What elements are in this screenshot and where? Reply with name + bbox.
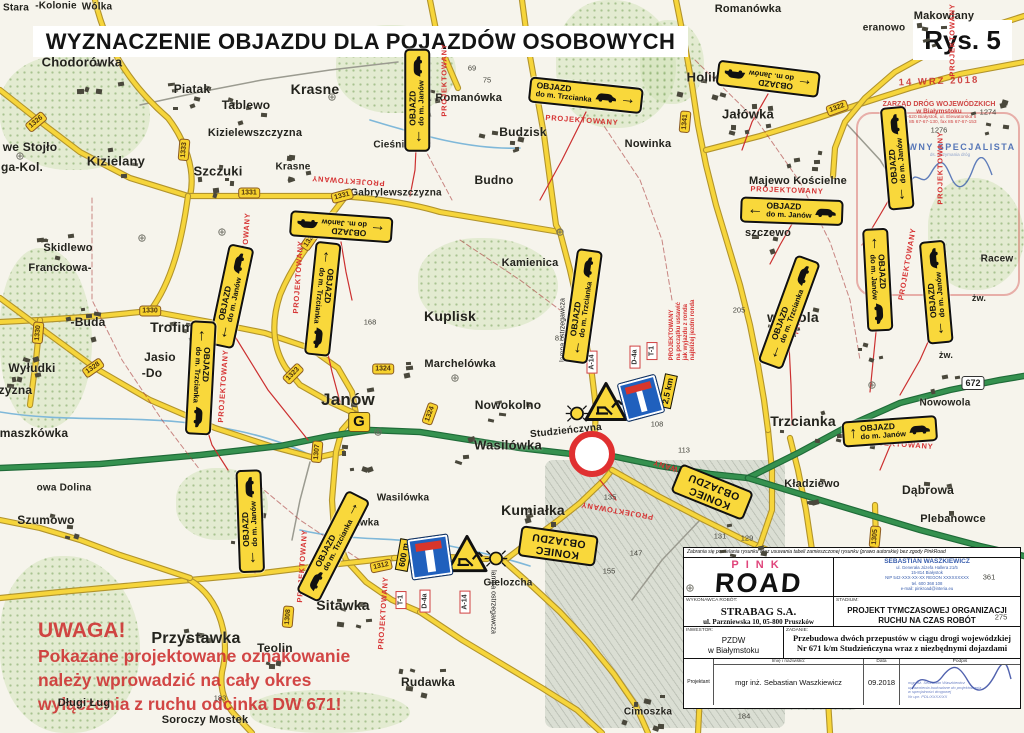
car-icon xyxy=(815,206,837,218)
place-label: Jałówka xyxy=(722,107,774,122)
map-number: 1274 xyxy=(980,108,997,117)
arrow-icon: ← xyxy=(765,342,784,362)
warning-lamp-label: lampa ostrzegawcza xyxy=(490,570,497,634)
building-mark xyxy=(73,533,79,539)
building-mark xyxy=(121,174,127,178)
building-mark xyxy=(955,375,960,379)
car-icon xyxy=(580,256,594,279)
detour-end-sign: KONIECOBJAZDU xyxy=(517,525,599,567)
place-label: we Stojło xyxy=(3,140,57,154)
building-mark xyxy=(342,451,346,456)
building-mark xyxy=(879,355,884,359)
arrow-icon: ← xyxy=(320,248,336,265)
projektowany-label: PROJEKTOWANY xyxy=(580,500,654,522)
title-block: Zabrania się powielania rysunku oraz usu… xyxy=(683,547,1021,709)
place-label: ga-Kol. xyxy=(1,160,43,174)
road-number-shield: 1341 xyxy=(679,111,692,133)
building-mark xyxy=(917,23,923,28)
sign-destination: do m. Janów xyxy=(868,254,879,300)
building-mark xyxy=(499,413,506,417)
car-icon xyxy=(723,68,746,82)
building-mark xyxy=(225,178,229,181)
place-label: Szumowo xyxy=(17,513,74,527)
detour-sign: ←OBJAZDdo m. Janów xyxy=(740,196,844,225)
arrow-icon: ← xyxy=(568,339,584,357)
building-mark xyxy=(77,88,84,93)
pinkroad-logo: PINK ROAD xyxy=(684,558,834,596)
building-mark xyxy=(711,95,718,101)
arrow-icon: ← xyxy=(869,235,884,252)
road-number-shield: 1312 xyxy=(369,558,392,573)
building-mark xyxy=(406,362,411,365)
sign-destination: do m. Janów xyxy=(935,272,947,318)
detour-sign: ←OBJAZDdo m. Janów xyxy=(715,60,821,98)
place-label: Nowokolno xyxy=(475,398,541,412)
stage-cell: STADIUM: PROJEKT TYMCZASOWEJ ORGANIZACJI… xyxy=(834,597,1020,626)
building-mark xyxy=(455,460,462,465)
task-cell: ZADANIE: Przebudowa dwóch przepustów w c… xyxy=(784,627,1020,658)
place-label: Krasne xyxy=(275,162,310,173)
detour-sign: ←OBJAZDdo m. Janów xyxy=(919,239,953,344)
car-icon xyxy=(243,476,255,498)
place-label: Wólka xyxy=(82,2,112,13)
building-mark xyxy=(173,107,178,110)
building-mark xyxy=(462,455,468,459)
car-icon xyxy=(412,55,423,77)
place-label: Kizielany xyxy=(87,154,145,169)
place-label: czyzna xyxy=(0,383,32,397)
building-mark xyxy=(478,133,485,139)
contractor-cell: WYKONAWCA ROBÓT: STRABAG S.A. ul. Parzni… xyxy=(684,597,834,626)
arrow-icon: ← xyxy=(244,549,259,565)
place-label: Teolin xyxy=(257,641,293,655)
road-number-shield: 1305 xyxy=(869,526,882,548)
map-number: 131 xyxy=(714,532,727,541)
designer-name: mgr inż. Sebastian Waszkiewicz xyxy=(714,665,863,699)
building-mark xyxy=(835,438,841,443)
place-label: Skidlewo xyxy=(43,242,92,254)
sign-type-label: A-14 xyxy=(460,590,471,613)
signature-scribble xyxy=(905,157,995,197)
building-mark xyxy=(193,96,200,102)
sign-destination: do m. Janów xyxy=(860,430,906,442)
sign-type-label: T-1 xyxy=(647,342,658,360)
detour-sign: ←OBJAZDdo m. Janów xyxy=(404,48,430,151)
signature-cell: Podpis mgr inż. Sebastian Waszkiewicz up… xyxy=(900,659,1020,705)
place-label: Kładziewo xyxy=(784,478,840,490)
map-number: 275 xyxy=(995,613,1008,622)
place-label: -Kolonie xyxy=(35,1,77,12)
map-number: 75 xyxy=(483,76,491,85)
detour-end-sign: KONIECOBJAZDU xyxy=(670,463,754,521)
building-mark xyxy=(863,343,869,348)
building-mark xyxy=(406,366,413,370)
car-icon xyxy=(595,90,618,103)
building-mark xyxy=(744,129,749,134)
road-number-shield: 1330 xyxy=(139,306,161,317)
sign-type-label: D-4a xyxy=(420,589,431,612)
sign-destination: do m. Janów xyxy=(250,501,260,547)
place-label: Nowinka xyxy=(625,138,672,150)
place-label: Wyłudki xyxy=(8,361,55,375)
arrow-icon: → xyxy=(342,498,362,519)
place-label: -Do xyxy=(142,366,163,380)
building-mark xyxy=(16,377,22,383)
map-number: 129 xyxy=(741,534,754,543)
building-mark xyxy=(190,103,196,108)
roundabout-note: PROJEKTOWANYna początku ustawićjak wyjaz… xyxy=(669,300,697,361)
place-label: owa Dolina xyxy=(37,483,92,494)
projektowany-label: PROJEKTOWANY xyxy=(750,184,824,196)
projektowany-label: PROJEKTOWANY xyxy=(216,349,230,423)
forest-area xyxy=(0,248,92,428)
car-icon xyxy=(888,113,901,136)
map-number: 361 xyxy=(983,573,996,582)
place-label: Plebanowce xyxy=(920,513,986,525)
road-number-shield: 1333 xyxy=(178,139,191,161)
place-label: maszkówka xyxy=(0,426,68,440)
building-mark xyxy=(342,444,349,448)
building-mark xyxy=(231,541,236,545)
road-number-shield: 1323 xyxy=(281,362,304,385)
projektowany-label: PROJEKTOWANY xyxy=(936,131,945,204)
place-label: Kizielewszczyzna xyxy=(208,127,302,139)
place-label: Makowlany xyxy=(914,10,975,22)
contractor-name: STRABAG S.A. xyxy=(721,606,797,618)
poi-icon: ⊕ xyxy=(685,582,694,595)
place-label: Piatak xyxy=(174,82,211,96)
place-label: Krasne xyxy=(291,81,340,97)
sign-destination: do m. Janów xyxy=(766,210,812,220)
place-label: Racew xyxy=(981,254,1014,265)
d4a-no-through-road-sign xyxy=(406,533,453,580)
building-mark xyxy=(64,535,69,539)
designer-stamp: mgr inż. Sebastian Waszkiewicz uprawnien… xyxy=(908,681,981,699)
road-number-shield: 1331 xyxy=(330,188,354,204)
title-banner: WYZNACZENIE OBJAZDU DLA POJAZDÓW OSOBOWY… xyxy=(33,26,688,57)
projektowany-label: PROJEKTOWANY xyxy=(291,240,305,314)
building-mark xyxy=(409,669,415,674)
arrow-icon: → xyxy=(619,92,636,108)
arrow-icon: ← xyxy=(796,76,814,92)
building-mark xyxy=(212,193,217,199)
place-label: Kumiałka xyxy=(501,502,565,518)
warning-lamp-icon xyxy=(483,546,509,577)
building-mark xyxy=(404,372,411,378)
projektowany-label: PROJEKTOWANY xyxy=(545,113,619,127)
map-number: 147 xyxy=(630,549,643,558)
place-label: Kuplisk xyxy=(424,308,476,324)
gmina-marker: G xyxy=(348,412,370,432)
place-label: Cimoszka xyxy=(624,707,672,718)
poi-icon: ⊕ xyxy=(217,226,226,239)
building-mark xyxy=(984,131,989,135)
road-number-shield: 1324 xyxy=(372,364,394,375)
building-mark xyxy=(814,160,820,165)
building-mark xyxy=(238,120,244,125)
building-mark xyxy=(515,147,519,151)
building-mark xyxy=(84,86,89,92)
road-number-shield: 672 xyxy=(961,376,984,390)
sign-type-label: T-1 xyxy=(396,591,407,609)
design-date: 09.2018 xyxy=(864,665,899,699)
name-cell: Imię i nazwisko: mgr inż. Sebastian Wasz… xyxy=(714,659,864,705)
building-mark xyxy=(811,167,817,171)
date-stamp: 14 WRZ 2018 xyxy=(860,73,1018,90)
place-label: Janów xyxy=(321,390,375,410)
place-label: szczewo xyxy=(745,227,791,239)
building-mark xyxy=(289,155,295,160)
building-mark xyxy=(766,124,771,129)
building-mark xyxy=(786,163,791,168)
detour-sign: ←OBJAZDdo m. Janów xyxy=(863,228,894,333)
car-icon xyxy=(193,406,205,429)
building-mark xyxy=(54,256,60,261)
road-number-shield: 1324 xyxy=(421,402,439,426)
map-number: 113 xyxy=(678,446,690,455)
place-label: Kamienica xyxy=(502,257,559,269)
place-label: L. Romanówka xyxy=(422,92,502,104)
place-label: Jasio xyxy=(144,350,176,364)
building-mark xyxy=(269,664,276,669)
place-label: Szczuki xyxy=(193,164,242,179)
warning-lamp-icon xyxy=(564,401,590,432)
poi-icon: ⊕ xyxy=(373,426,382,439)
sign-destination: do m. Janów xyxy=(896,138,908,184)
map-number: 184 xyxy=(738,712,751,721)
map-number: 205 xyxy=(733,306,746,315)
projektowany-label: PROJEKTOWANY xyxy=(948,3,957,76)
place-label: eranowo xyxy=(863,23,906,34)
page-title: WYZNACZENIE OBJAZDU DLA POJAZDÓW OSOBOWY… xyxy=(46,29,676,55)
place-label: Budzisk xyxy=(499,125,546,139)
date-cell: Data 09.2018 xyxy=(864,659,900,705)
poi-icon: ⊕ xyxy=(450,372,459,385)
building-mark xyxy=(421,692,428,698)
place-label: żw. xyxy=(939,350,953,360)
detour-sign: ←OBJAZDdo m. Trzcianka xyxy=(185,320,216,435)
place-label: Nowowola xyxy=(919,398,970,409)
car-icon xyxy=(927,247,940,270)
building-mark xyxy=(12,376,17,381)
map-number: 183 xyxy=(214,694,227,703)
building-mark xyxy=(728,130,735,136)
building-mark xyxy=(769,248,776,254)
arrow-icon: ← xyxy=(196,328,211,345)
building-mark xyxy=(644,698,652,704)
place-label: Holik xyxy=(687,70,720,85)
place-label: Wasilówka xyxy=(377,493,430,504)
arrow-icon: ← xyxy=(932,320,947,337)
building-mark xyxy=(336,622,343,628)
road-number-shield: 1322 xyxy=(825,99,849,117)
road-number-shield: 1328 xyxy=(81,357,105,378)
projektowany-label: PROJEKTOWANY xyxy=(376,576,390,650)
place-label: Marchelówka xyxy=(424,358,495,370)
building-mark xyxy=(288,178,296,183)
building-mark xyxy=(869,357,874,362)
building-mark xyxy=(350,468,355,472)
place-label: Franckowa- xyxy=(28,262,91,274)
road-number-shield: 1307 xyxy=(311,441,324,463)
building-mark xyxy=(757,545,764,550)
building-mark xyxy=(230,181,235,186)
place-label: żw. xyxy=(972,293,986,303)
building-mark xyxy=(108,148,114,153)
figure-label: Rys. 5 xyxy=(924,25,1001,56)
place-label: Chodorówka xyxy=(42,55,123,70)
building-mark xyxy=(621,719,627,725)
building-mark xyxy=(488,418,494,422)
place-label: Tablewo xyxy=(222,98,271,112)
building-mark xyxy=(794,157,801,162)
stage-value: PROJEKT TYMCZASOWEJ ORGANIZACJI RUCHU NA… xyxy=(834,606,1020,625)
car-icon xyxy=(230,251,245,275)
road-number-shield: 1330 xyxy=(32,322,45,344)
place-label: Wasilówka xyxy=(474,438,542,453)
place-label: Dąbrowa xyxy=(902,483,954,497)
building-mark xyxy=(355,624,361,628)
arrow-icon: ↑ xyxy=(849,426,858,441)
car-icon xyxy=(312,326,325,349)
investor-cell: INWESTOR: PZDW w Białymstoku xyxy=(684,627,784,658)
projektowany-label: PROJEKTOWANY xyxy=(896,227,918,301)
place-label: Długi Ług xyxy=(58,697,111,709)
place-label: Budno xyxy=(475,173,514,187)
building-mark xyxy=(398,668,403,673)
building-mark xyxy=(81,308,85,311)
building-mark xyxy=(440,669,446,672)
building-mark xyxy=(731,125,736,130)
arrow-icon: ← xyxy=(410,129,424,145)
closed-roundabout-marker xyxy=(569,431,615,477)
sign-destination: do m. Janów xyxy=(321,217,367,229)
projektowany-label: PROJEKTOWANY xyxy=(440,43,449,116)
poi-icon: ⊕ xyxy=(555,226,564,239)
task-value: Przebudowa dwóch przepustów w ciągu drog… xyxy=(784,633,1020,653)
detour-sign: ←OBJAZDdo m. Trzcianka xyxy=(561,248,602,365)
building-mark xyxy=(942,374,949,379)
car-icon xyxy=(908,423,931,436)
role-cell: Projektant xyxy=(684,659,714,705)
sign-type-label: D-4a xyxy=(630,345,641,368)
building-mark xyxy=(818,151,823,156)
building-mark xyxy=(660,695,665,698)
map-number: 135 xyxy=(604,493,617,502)
poi-icon: ⊕ xyxy=(867,379,876,392)
building-mark xyxy=(96,89,103,94)
building-mark xyxy=(858,348,862,351)
building-mark xyxy=(261,113,268,118)
map-number: 155 xyxy=(603,567,616,576)
building-mark xyxy=(510,141,515,145)
building-mark xyxy=(551,522,556,527)
projektowany-label: PROJEKTOWANY xyxy=(311,174,385,188)
place-label: Przystawka xyxy=(151,630,240,648)
building-mark xyxy=(118,82,125,87)
detour-sign: ←OBJAZDdo m. Trzcianka xyxy=(304,241,341,357)
map-number: 168 xyxy=(364,318,377,327)
building-mark xyxy=(91,336,97,342)
building-mark xyxy=(677,92,684,98)
building-mark xyxy=(931,388,937,394)
road-number-shield: 1331 xyxy=(238,188,260,199)
car-icon xyxy=(296,218,319,231)
map-number: 69 xyxy=(468,64,476,73)
place-label: Gabrylewszczyzna xyxy=(350,188,442,199)
building-mark xyxy=(922,27,928,32)
car-icon xyxy=(793,263,811,287)
road-number-shield: 1326 xyxy=(24,111,48,133)
car-icon xyxy=(305,569,325,594)
place-label: Rudawka xyxy=(401,675,455,689)
building-mark xyxy=(719,92,725,97)
arrow-icon: ← xyxy=(369,222,386,237)
place-label: Soroczy Mostek xyxy=(162,714,249,726)
detour-sign: ←OBJAZDdo m. Janów xyxy=(235,469,264,573)
building-mark xyxy=(726,524,731,528)
place-label: Trzcianka xyxy=(770,413,836,429)
place-label: Sitawka xyxy=(316,597,370,613)
sign-destination: do m. Trzcianka xyxy=(191,346,202,403)
arrow-icon: ← xyxy=(893,186,908,203)
place-label: Romanówka xyxy=(715,3,782,15)
sign-destination: do m. Janów xyxy=(417,80,426,125)
detour-sign: OBJAZDdo m. Trzcianka→ xyxy=(528,76,644,113)
building-mark xyxy=(1003,124,1010,129)
building-mark xyxy=(940,26,946,29)
arrow-icon: ← xyxy=(215,323,232,342)
poi-icon: ⊕ xyxy=(137,232,146,245)
map-number: 108 xyxy=(651,420,664,429)
map-canvas: WYZNACZENIE OBJAZDU DLA POJAZDÓW OSOBOWY… xyxy=(0,0,1024,733)
road-number-shield: 1308 xyxy=(282,606,295,628)
car-icon xyxy=(874,302,886,325)
arrow-icon: ← xyxy=(747,202,763,217)
building-mark xyxy=(658,724,665,729)
building-mark xyxy=(491,131,497,136)
building-mark xyxy=(985,122,991,126)
building-mark xyxy=(366,619,372,623)
place-label: -Buda xyxy=(71,315,106,329)
building-mark xyxy=(780,429,784,432)
building-mark xyxy=(366,466,374,473)
place-label: Stara xyxy=(3,3,29,14)
building-mark xyxy=(67,233,74,238)
building-mark xyxy=(814,439,819,443)
